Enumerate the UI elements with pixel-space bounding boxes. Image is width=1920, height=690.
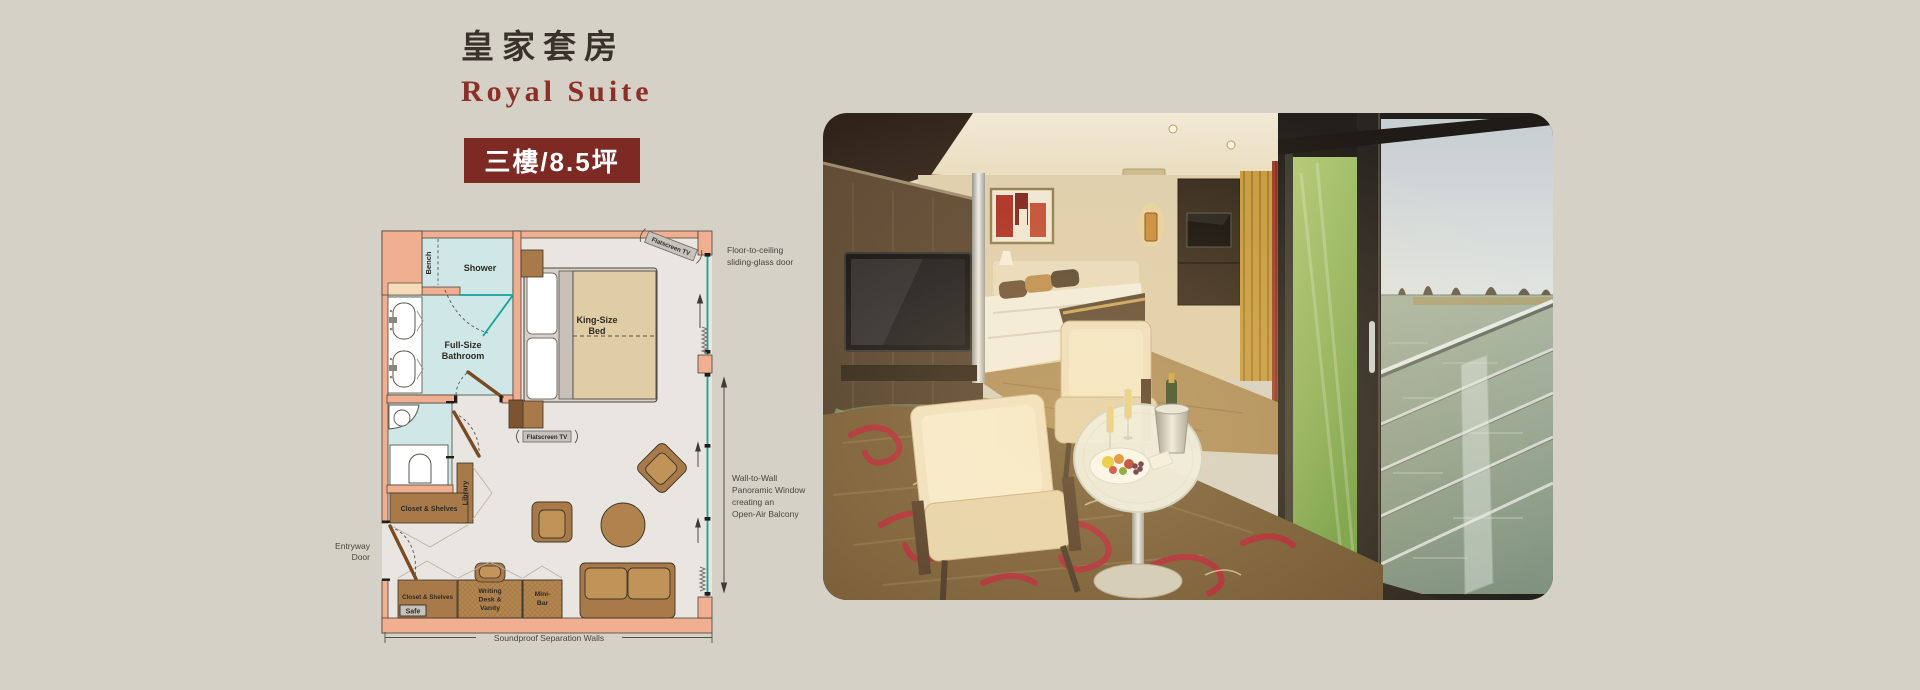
soundproof-label: Soundproof Separation Walls xyxy=(494,633,604,643)
entry-door-label: Entryway xyxy=(335,541,371,551)
svg-text:Bed: Bed xyxy=(588,326,605,336)
room-label-desk: Writing xyxy=(478,588,501,595)
room-label-minibar: Mini- xyxy=(535,591,551,598)
room-label-bed: King-Size xyxy=(576,315,617,325)
soundproof-dimension: Soundproof Separation Walls xyxy=(385,632,712,643)
suite-header: 皇家套房 Royal Suite xyxy=(461,30,881,109)
room-label-bathroom: Full-Size xyxy=(444,340,481,350)
suite-photo-art xyxy=(823,113,1553,600)
room-label-closet-upper: Closet & Shelves xyxy=(401,506,458,513)
svg-text:Panoramic Window: Panoramic Window xyxy=(732,485,806,495)
wall-ledge xyxy=(388,283,422,295)
svg-text:Desk &: Desk & xyxy=(478,597,501,604)
floorplan: Flatscreen TV Flatscreen TV Bench Shower… xyxy=(330,215,820,655)
sofa xyxy=(580,563,675,618)
svg-text:creating an: creating an xyxy=(732,497,774,507)
svg-text:Flatscreen TV: Flatscreen TV xyxy=(527,434,568,441)
svg-text:Safe: Safe xyxy=(406,609,421,616)
tv-badge-mid: Flatscreen TV xyxy=(517,430,578,443)
svg-text:Vanity: Vanity xyxy=(480,605,500,612)
suite-title-en: Royal Suite xyxy=(461,75,881,109)
room-label-closet-lower: Closet & Shelves xyxy=(402,594,454,601)
room-label-bench: Bench xyxy=(424,251,433,274)
round-table xyxy=(601,503,645,547)
svg-text:Door: Door xyxy=(352,552,371,562)
safe-badge: Safe xyxy=(400,605,426,616)
tv-cabinet xyxy=(509,400,523,428)
armchair xyxy=(532,502,572,542)
svg-text:sliding-glass door: sliding-glass door xyxy=(727,257,793,267)
sliding-door-label: Floor-to-ceiling xyxy=(727,245,783,255)
floor-area-badge: 三樓/8.5坪 xyxy=(464,138,640,183)
room-label-library: Library xyxy=(461,480,470,506)
panoramic-window-label: Wall-to-Wall xyxy=(732,473,777,483)
svg-text:Open-Air Balcony: Open-Air Balcony xyxy=(732,509,799,519)
bed xyxy=(521,250,657,428)
suite-photo xyxy=(823,113,1553,600)
svg-text:Bar: Bar xyxy=(537,600,549,607)
room-label-shower: Shower xyxy=(464,263,497,273)
suite-banner: 皇家套房 Royal Suite 三樓/8.5坪 xyxy=(0,0,1920,690)
photo-light-wash xyxy=(823,113,1553,600)
svg-text:Bathroom: Bathroom xyxy=(442,351,485,361)
suite-title-zh: 皇家套房 xyxy=(461,30,881,66)
